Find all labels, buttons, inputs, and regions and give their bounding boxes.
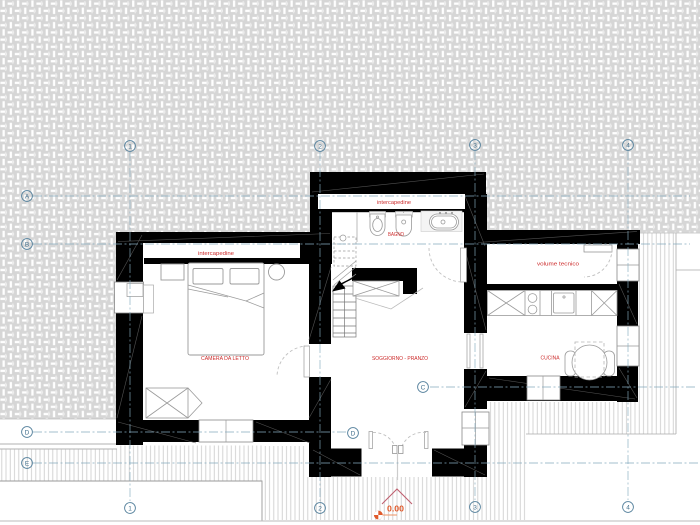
svg-text:SOGGIORNO - PRANZO: SOGGIORNO - PRANZO — [372, 356, 428, 362]
svg-text:D: D — [351, 431, 356, 438]
svg-text:volume tecnico: volume tecnico — [537, 262, 579, 268]
svg-text:A: A — [25, 194, 30, 201]
svg-text:E: E — [25, 461, 30, 468]
svg-text:3: 3 — [473, 143, 477, 150]
svg-text:BAGNO: BAGNO — [388, 232, 404, 238]
svg-text:3: 3 — [473, 505, 477, 512]
svg-text:1: 1 — [128, 506, 132, 513]
svg-text:2: 2 — [318, 144, 322, 151]
svg-text:CAMERA DA LETTO: CAMERA DA LETTO — [201, 356, 249, 362]
svg-text:1: 1 — [128, 144, 132, 151]
svg-text:intercapedine: intercapedine — [377, 200, 411, 206]
svg-text:C: C — [421, 385, 426, 392]
svg-text:4: 4 — [626, 505, 630, 512]
svg-text:2: 2 — [318, 506, 322, 513]
svg-text:4: 4 — [626, 143, 630, 150]
svg-text:0.00: 0.00 — [387, 505, 405, 514]
svg-text:D: D — [25, 430, 30, 437]
svg-text:B: B — [25, 242, 29, 249]
svg-text:CUCINA: CUCINA — [541, 356, 561, 362]
svg-text:intercapedine: intercapedine — [198, 251, 234, 257]
